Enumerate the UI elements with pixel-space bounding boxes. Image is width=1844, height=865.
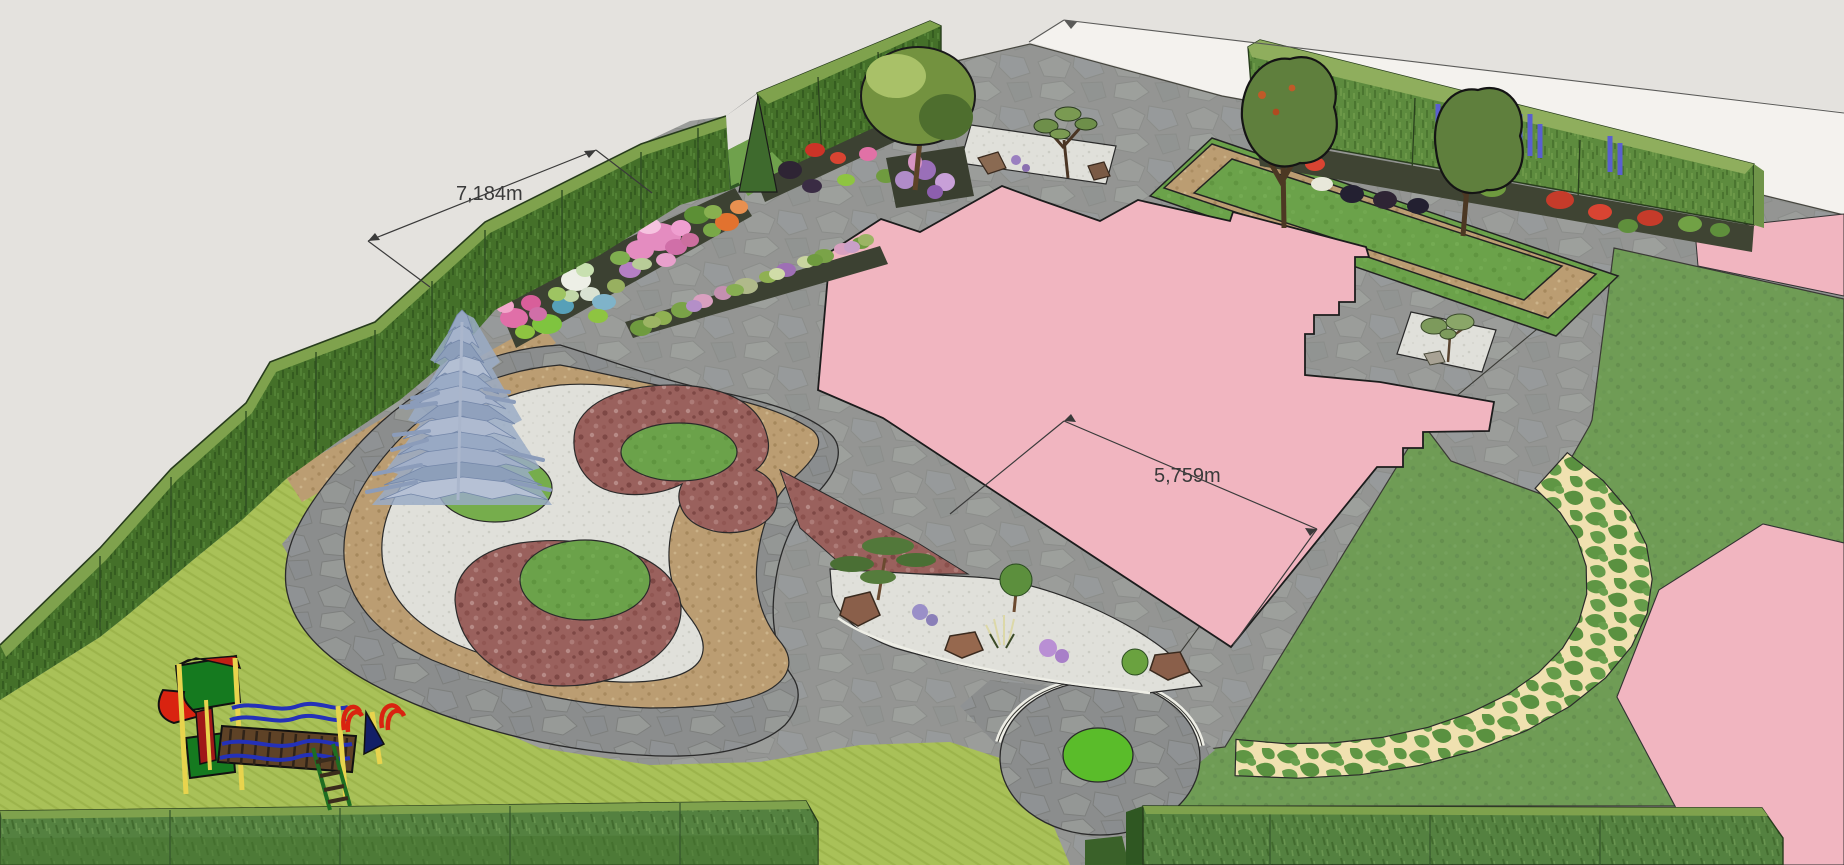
svg-text:5,759m: 5,759m	[1154, 465, 1221, 487]
svg-text:7,184m: 7,184m	[456, 183, 523, 205]
